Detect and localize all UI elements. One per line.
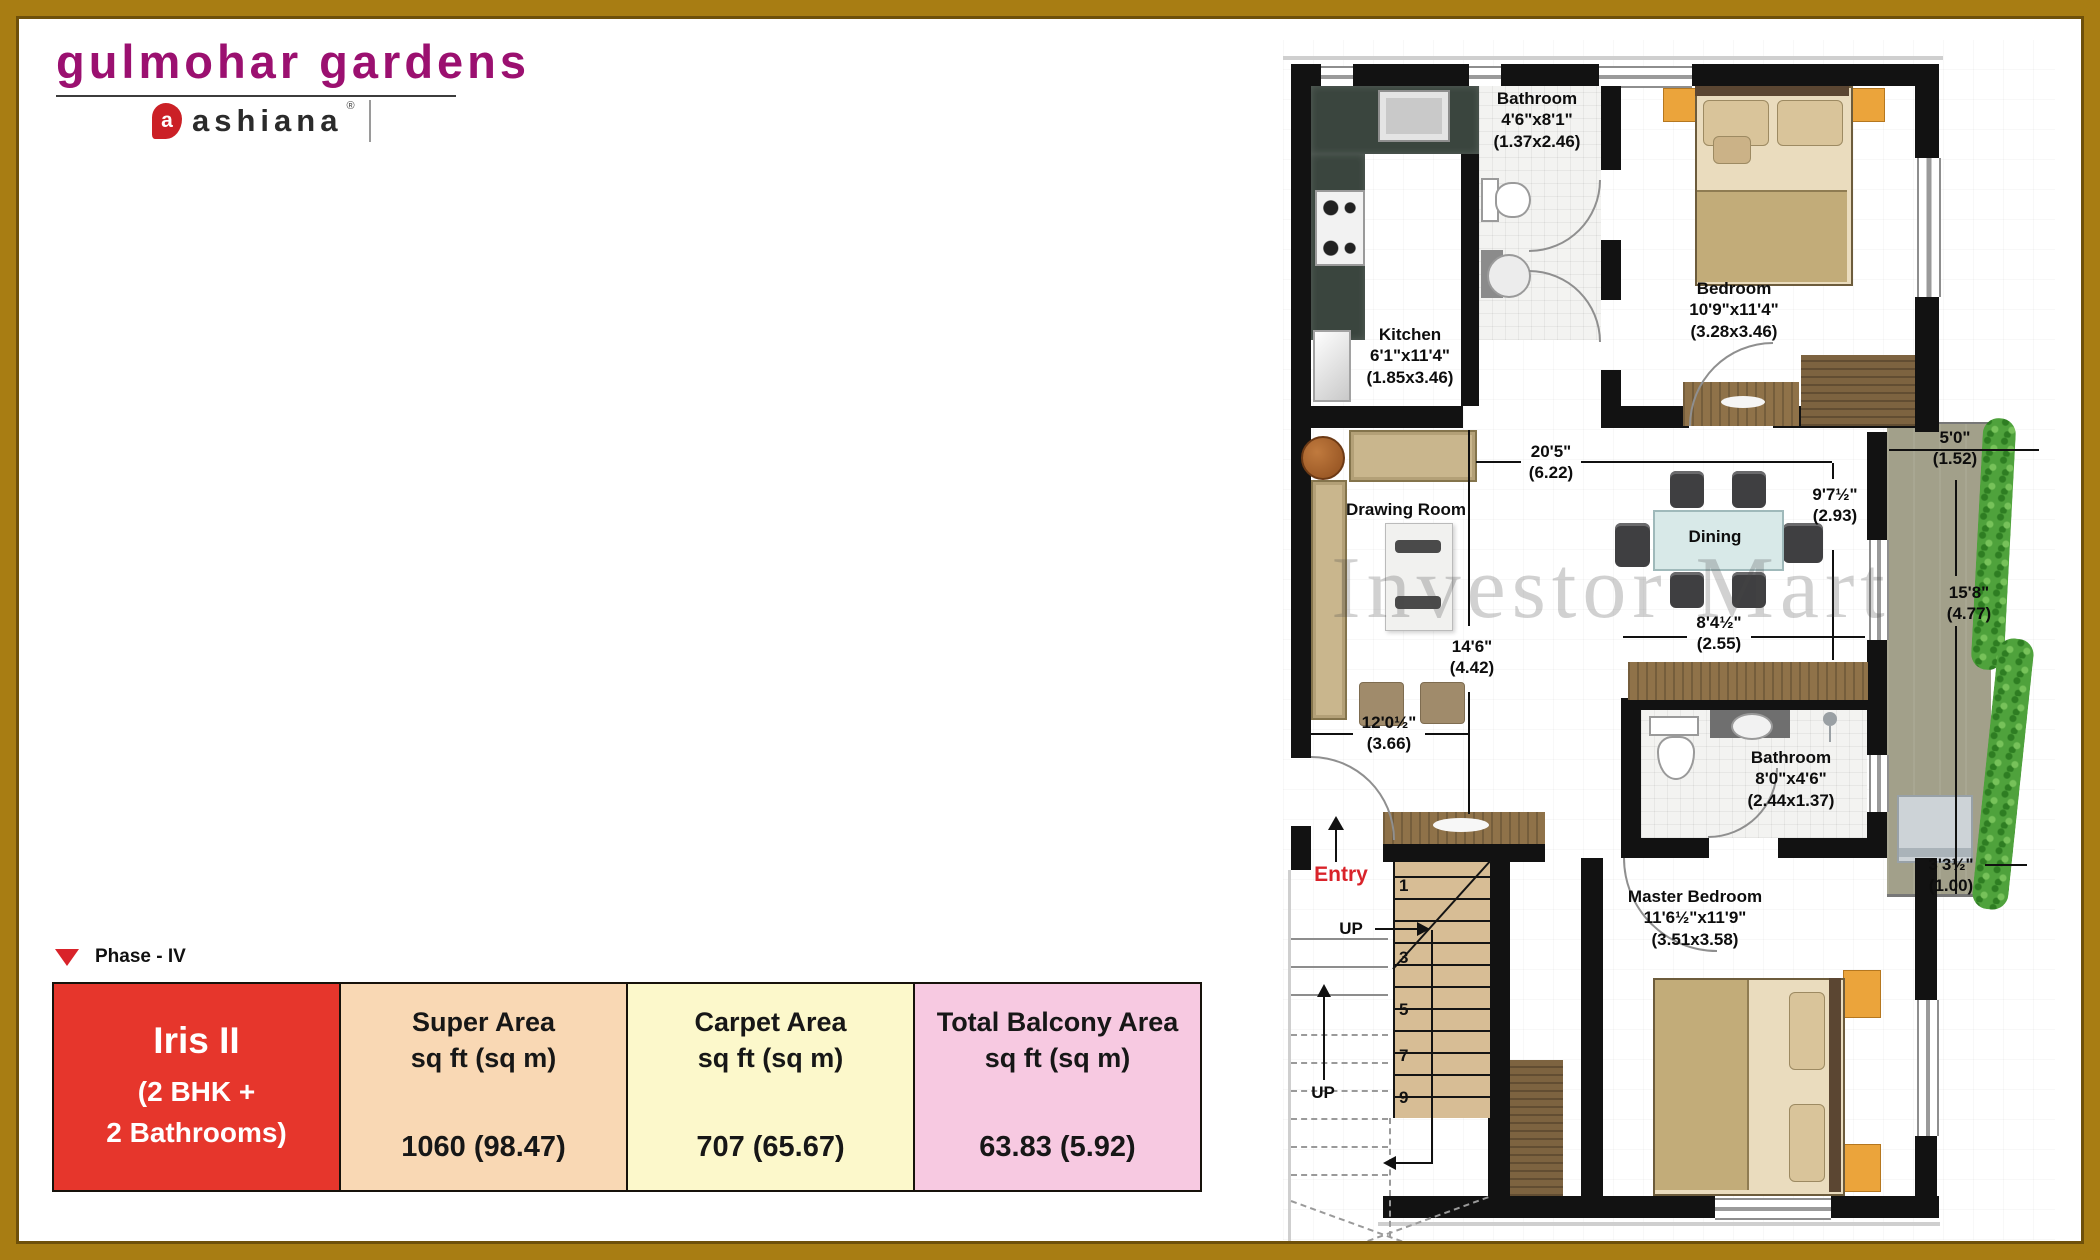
stair-number: 3 xyxy=(1399,948,1408,968)
stove-hob xyxy=(1315,190,1365,266)
crockery-unit xyxy=(1628,662,1868,700)
stair-number: 5 xyxy=(1399,1000,1408,1020)
stair-dashed-line xyxy=(1291,1034,1388,1036)
washbasin-icon xyxy=(1487,254,1531,298)
dim-line xyxy=(1581,461,1832,463)
unit-config-line2: 2 Bathrooms) xyxy=(106,1113,286,1154)
carpet-area-header: Carpet Area sq ft (sq m) xyxy=(694,984,846,1077)
pillow xyxy=(1789,1104,1825,1182)
dim-ft: 9'7½" xyxy=(1812,484,1857,505)
up-label: UP xyxy=(1303,1082,1343,1104)
wall xyxy=(1601,86,1621,170)
arrow-left-head xyxy=(1383,1156,1396,1170)
dim-20-5: 20'5" (6.22) xyxy=(1519,438,1583,486)
dim-line xyxy=(1955,480,1957,576)
dining-chair xyxy=(1732,471,1766,508)
bathroom1-label: Bathroom 4'6"x8'1" (1.37x2.46) xyxy=(1475,90,1599,150)
room-name: Bathroom xyxy=(1751,747,1831,768)
room-dims-ft: 6'1"x11'4" xyxy=(1370,345,1450,366)
registered-mark: ® xyxy=(346,100,354,112)
area-summary-table: Iris II (2 BHK + 2 Bathrooms) Super Area… xyxy=(52,982,1202,1192)
pouf-stool xyxy=(1420,682,1465,724)
carpet-area-header-line1: Carpet Area xyxy=(694,1004,846,1040)
wall xyxy=(1778,838,1887,858)
up-arrow xyxy=(1323,996,1325,1080)
dim-line xyxy=(1832,463,1834,479)
window xyxy=(1869,755,1889,812)
bed-blanket xyxy=(1697,190,1847,282)
dim-line xyxy=(1311,733,1353,735)
dim-line xyxy=(1425,733,1470,735)
triangle-down-icon xyxy=(55,949,79,966)
dim-line xyxy=(1985,864,2027,866)
dim-3-3: 3'3½" (1.00) xyxy=(1915,848,1987,902)
flyer-page: gulmohar gardens a ashiana ® Phase - IV … xyxy=(0,0,2100,1260)
dim-line xyxy=(1468,692,1470,814)
dim-m: (6.22) xyxy=(1529,462,1573,483)
arrow-up-head xyxy=(1317,984,1331,997)
cabinet-dish xyxy=(1433,818,1489,832)
dim-m: (4.77) xyxy=(1947,603,1991,624)
room-dims-ft: 11'6½"x11'9" xyxy=(1644,907,1747,928)
wall xyxy=(1915,1136,1937,1218)
wall xyxy=(1621,698,1641,858)
window xyxy=(1599,66,1692,88)
toilet-cistern xyxy=(1649,716,1699,736)
wall xyxy=(1291,406,1463,428)
dim-ft: 8'4½" xyxy=(1696,612,1741,633)
wall xyxy=(1601,240,1621,300)
stair-dashed-line xyxy=(1291,1146,1388,1148)
master-bedroom-label: Master Bedroom 11'6½"x11'9" (3.51x3.58) xyxy=(1605,884,1785,952)
room-dims-m: (3.28x3.46) xyxy=(1691,321,1778,342)
room-dims-ft: 4'6"x8'1" xyxy=(1501,109,1572,130)
dim-8-4: 8'4½" (2.55) xyxy=(1685,608,1753,658)
room-name: Dining xyxy=(1689,526,1742,547)
pillow xyxy=(1789,992,1825,1070)
dim-m: (3.66) xyxy=(1367,733,1411,754)
wall xyxy=(1383,842,1545,862)
watermark: Investor Mart xyxy=(1301,538,1921,639)
balcony-area-cell: Total Balcony Area sq ft (sq m) 63.83 (5… xyxy=(913,984,1200,1190)
dim-m: (2.55) xyxy=(1697,633,1741,654)
pillow xyxy=(1777,100,1843,146)
staircase xyxy=(1393,862,1490,1118)
super-area-header-line1: Super Area xyxy=(411,1004,557,1040)
window xyxy=(1917,158,1941,297)
carpet-area-value: 707 (65.67) xyxy=(696,1131,844,1190)
stair-line xyxy=(1291,994,1388,996)
dim-9-7: 9'7½" (2.93) xyxy=(1802,480,1868,530)
bed-headboard xyxy=(1695,86,1849,96)
wardrobe xyxy=(1801,355,1915,426)
dim-m: (4.42) xyxy=(1450,657,1494,678)
dim-ft: 15'8" xyxy=(1949,582,1989,603)
dim-12-0: 12'0½" (3.66) xyxy=(1353,708,1425,758)
wall xyxy=(1867,432,1887,540)
washbasin-icon xyxy=(1731,713,1773,740)
dim-ft: 20'5" xyxy=(1531,441,1571,462)
kitchen-label: Kitchen 6'1"x11'4" (1.85x3.46) xyxy=(1345,326,1475,386)
wall xyxy=(1915,64,1939,158)
carpet-area-header-line2: sq ft (sq m) xyxy=(694,1040,846,1076)
balcony-area-header-line1: Total Balcony Area xyxy=(937,1004,1179,1040)
wall xyxy=(1581,1196,1715,1218)
phase-label: Phase - IV xyxy=(95,946,186,968)
balcony-area-header-line2: sq ft (sq m) xyxy=(937,1040,1179,1076)
sofa xyxy=(1349,430,1477,482)
brand-underline xyxy=(56,95,456,97)
up-arrow xyxy=(1375,928,1419,930)
balcony-area-value: 63.83 (5.92) xyxy=(979,1131,1135,1190)
window xyxy=(1321,66,1353,88)
dim-m: (1.52) xyxy=(1933,448,1977,469)
unit-name: Iris II xyxy=(153,1020,239,1062)
window xyxy=(1715,1198,1831,1220)
wall xyxy=(1915,297,1939,432)
unit-config-line1: (2 BHK + xyxy=(138,1072,255,1113)
bed-blanket xyxy=(1655,980,1749,1190)
dim-ft: 14'6" xyxy=(1452,636,1492,657)
window xyxy=(1469,66,1501,88)
wall xyxy=(1601,370,1621,406)
wall xyxy=(1501,64,1599,86)
stair-number: 1 xyxy=(1399,876,1408,896)
room-name: Bathroom xyxy=(1497,88,1577,109)
kitchen-sink xyxy=(1378,90,1450,142)
stair-dashed-line xyxy=(1291,1118,1388,1120)
wall xyxy=(1692,64,1939,86)
stair-dashed-line xyxy=(1291,1062,1388,1064)
room-dims-m: (1.37x2.46) xyxy=(1494,131,1581,152)
wall xyxy=(1601,406,1689,428)
dim-line xyxy=(1476,461,1521,463)
entry-door-arc xyxy=(1311,756,1395,840)
room-name: Kitchen xyxy=(1379,324,1441,345)
dim-14-6: 14'6" (4.42) xyxy=(1440,626,1504,688)
wardrobe xyxy=(1510,1060,1563,1196)
shower-icon xyxy=(1823,712,1837,726)
stair-direction-line xyxy=(1395,1162,1433,1164)
room-dims-m: (3.51x3.58) xyxy=(1652,929,1739,950)
stair-number: 9 xyxy=(1399,1088,1408,1108)
plinth-line xyxy=(1283,56,1943,60)
room-dims-m: (2.44x1.37) xyxy=(1748,790,1835,811)
room-name: Drawing Room xyxy=(1346,499,1466,520)
balcony-area-header: Total Balcony Area sq ft (sq m) xyxy=(937,984,1179,1077)
stair-line xyxy=(1291,966,1388,968)
nightstand xyxy=(1663,88,1697,122)
plinth-line xyxy=(1378,1222,1940,1226)
up-label: UP xyxy=(1331,918,1371,940)
nightstand xyxy=(1851,88,1885,122)
carpet-area-cell: Carpet Area sq ft (sq m) 707 (65.67) xyxy=(626,984,913,1190)
super-area-value: 1060 (98.47) xyxy=(401,1131,565,1190)
brand-title: gulmohar gardens xyxy=(56,34,530,89)
dim-5-0: 5'0" (1.52) xyxy=(1923,424,1987,472)
entry-label: Entry xyxy=(1295,862,1387,888)
dim-ft: 12'0½" xyxy=(1362,712,1417,733)
bed-headboard xyxy=(1829,978,1841,1192)
super-area-header-line2: sq ft (sq m) xyxy=(411,1040,557,1076)
unit-name-cell: Iris II (2 BHK + 2 Bathrooms) xyxy=(54,984,339,1190)
round-table xyxy=(1301,436,1345,480)
wall xyxy=(1488,862,1510,1198)
wall xyxy=(1581,858,1603,1198)
room-dims-m: (1.85x3.46) xyxy=(1367,367,1454,388)
logo-divider xyxy=(369,100,371,142)
stair-direction-line xyxy=(1431,930,1433,1164)
dim-ft: 5'0" xyxy=(1939,427,1970,448)
ashiana-heart-icon: a xyxy=(152,103,182,139)
floor-plan: Entry 1 3 5 7 9 UP UP Investor Mart xyxy=(1283,40,2055,1240)
dim-m: (1.00) xyxy=(1929,875,1973,896)
dining-chair xyxy=(1670,471,1704,508)
nightstand xyxy=(1843,970,1881,1018)
room-dims-ft: 8'0"x4'6" xyxy=(1755,768,1826,789)
stair-number: 7 xyxy=(1399,1046,1408,1066)
developer-logo-text: ashiana xyxy=(192,103,342,139)
room-name: Master Bedroom xyxy=(1628,886,1762,907)
drawing-room-label: Drawing Room xyxy=(1338,498,1474,522)
dim-15-8: 15'8" (4.77) xyxy=(1936,578,2002,628)
super-area-cell: Super Area sq ft (sq m) 1060 (98.47) xyxy=(339,984,626,1190)
toilet-icon xyxy=(1495,182,1531,218)
super-area-header: Super Area sq ft (sq m) xyxy=(411,984,557,1077)
room-dims-ft: 10'9"x11'4" xyxy=(1689,299,1778,320)
door-arc xyxy=(1689,342,1773,426)
dim-m: (2.93) xyxy=(1813,505,1857,526)
shower-icon xyxy=(1829,726,1831,742)
window xyxy=(1917,1000,1939,1136)
dim-ft: 3'3½" xyxy=(1928,854,1973,875)
stair-dashed-line xyxy=(1291,1174,1388,1176)
dining-label: Dining xyxy=(1683,526,1747,548)
bathroom2-label: Bathroom 8'0"x4'6" (2.44x1.37) xyxy=(1711,746,1871,812)
arrow-right-head xyxy=(1417,922,1430,936)
phase-row: Phase - IV xyxy=(55,946,186,968)
bedroom-label: Bedroom 10'9"x11'4" (3.28x3.46) xyxy=(1669,280,1799,340)
wall xyxy=(1621,838,1709,858)
room-name: Bedroom xyxy=(1697,278,1772,299)
wall xyxy=(1353,64,1469,86)
nightstand xyxy=(1843,1144,1881,1192)
developer-logo: a ashiana ® xyxy=(152,100,371,142)
cushion xyxy=(1713,136,1751,164)
